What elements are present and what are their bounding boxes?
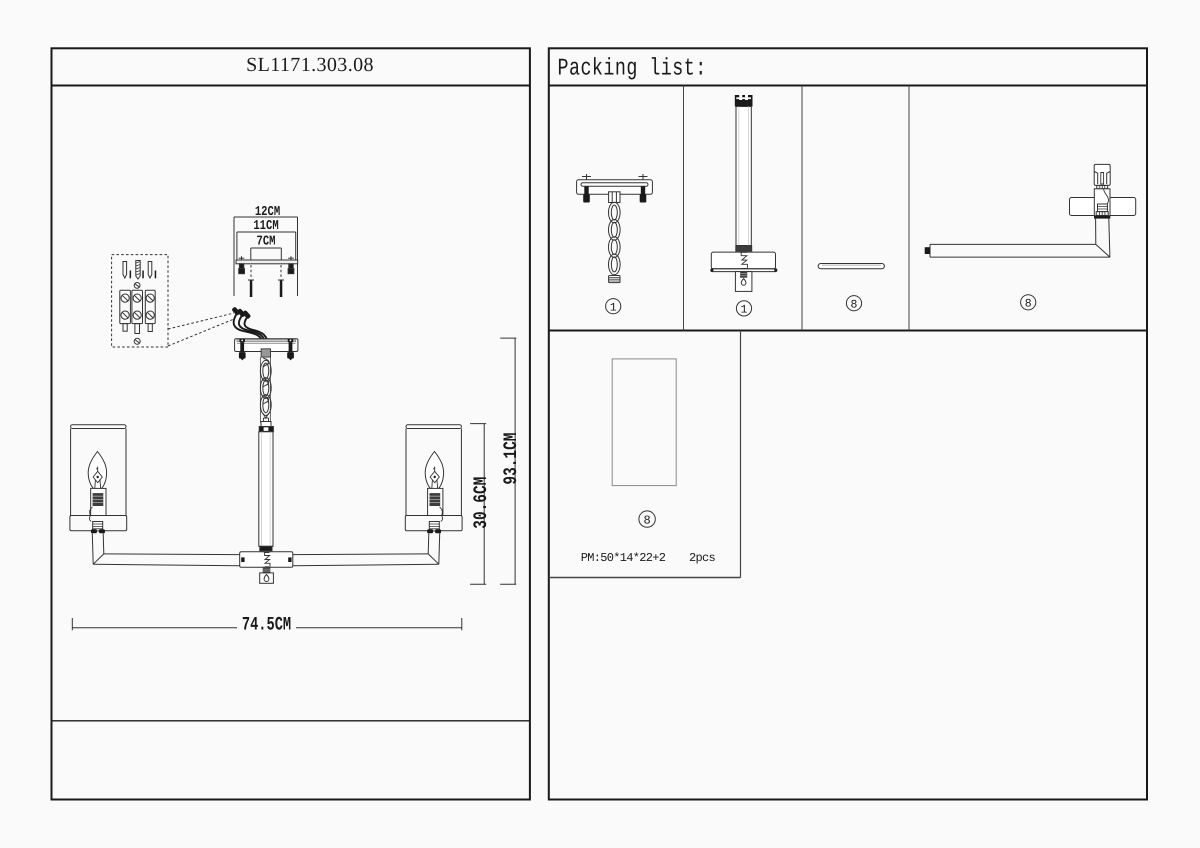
svg-text:1: 1: [610, 301, 617, 314]
svg-text:8: 8: [1025, 298, 1032, 311]
svg-text:93.1CM: 93.1CM: [500, 433, 522, 485]
svg-text:74.5CM: 74.5CM: [242, 614, 291, 636]
svg-text:2pcs: 2pcs: [689, 551, 716, 565]
svg-text:8: 8: [851, 298, 858, 311]
svg-text:12CM: 12CM: [255, 205, 280, 220]
svg-text:7CM: 7CM: [257, 235, 276, 250]
svg-text:30.6CM: 30.6CM: [470, 477, 492, 529]
svg-text:PM:50*14*22+2: PM:50*14*22+2: [581, 551, 666, 565]
svg-text:Packing list:: Packing list:: [558, 56, 707, 83]
svg-text:8: 8: [643, 514, 650, 528]
svg-text:1: 1: [741, 304, 748, 317]
svg-text:SL1171.303.08: SL1171.303.08: [246, 54, 374, 76]
